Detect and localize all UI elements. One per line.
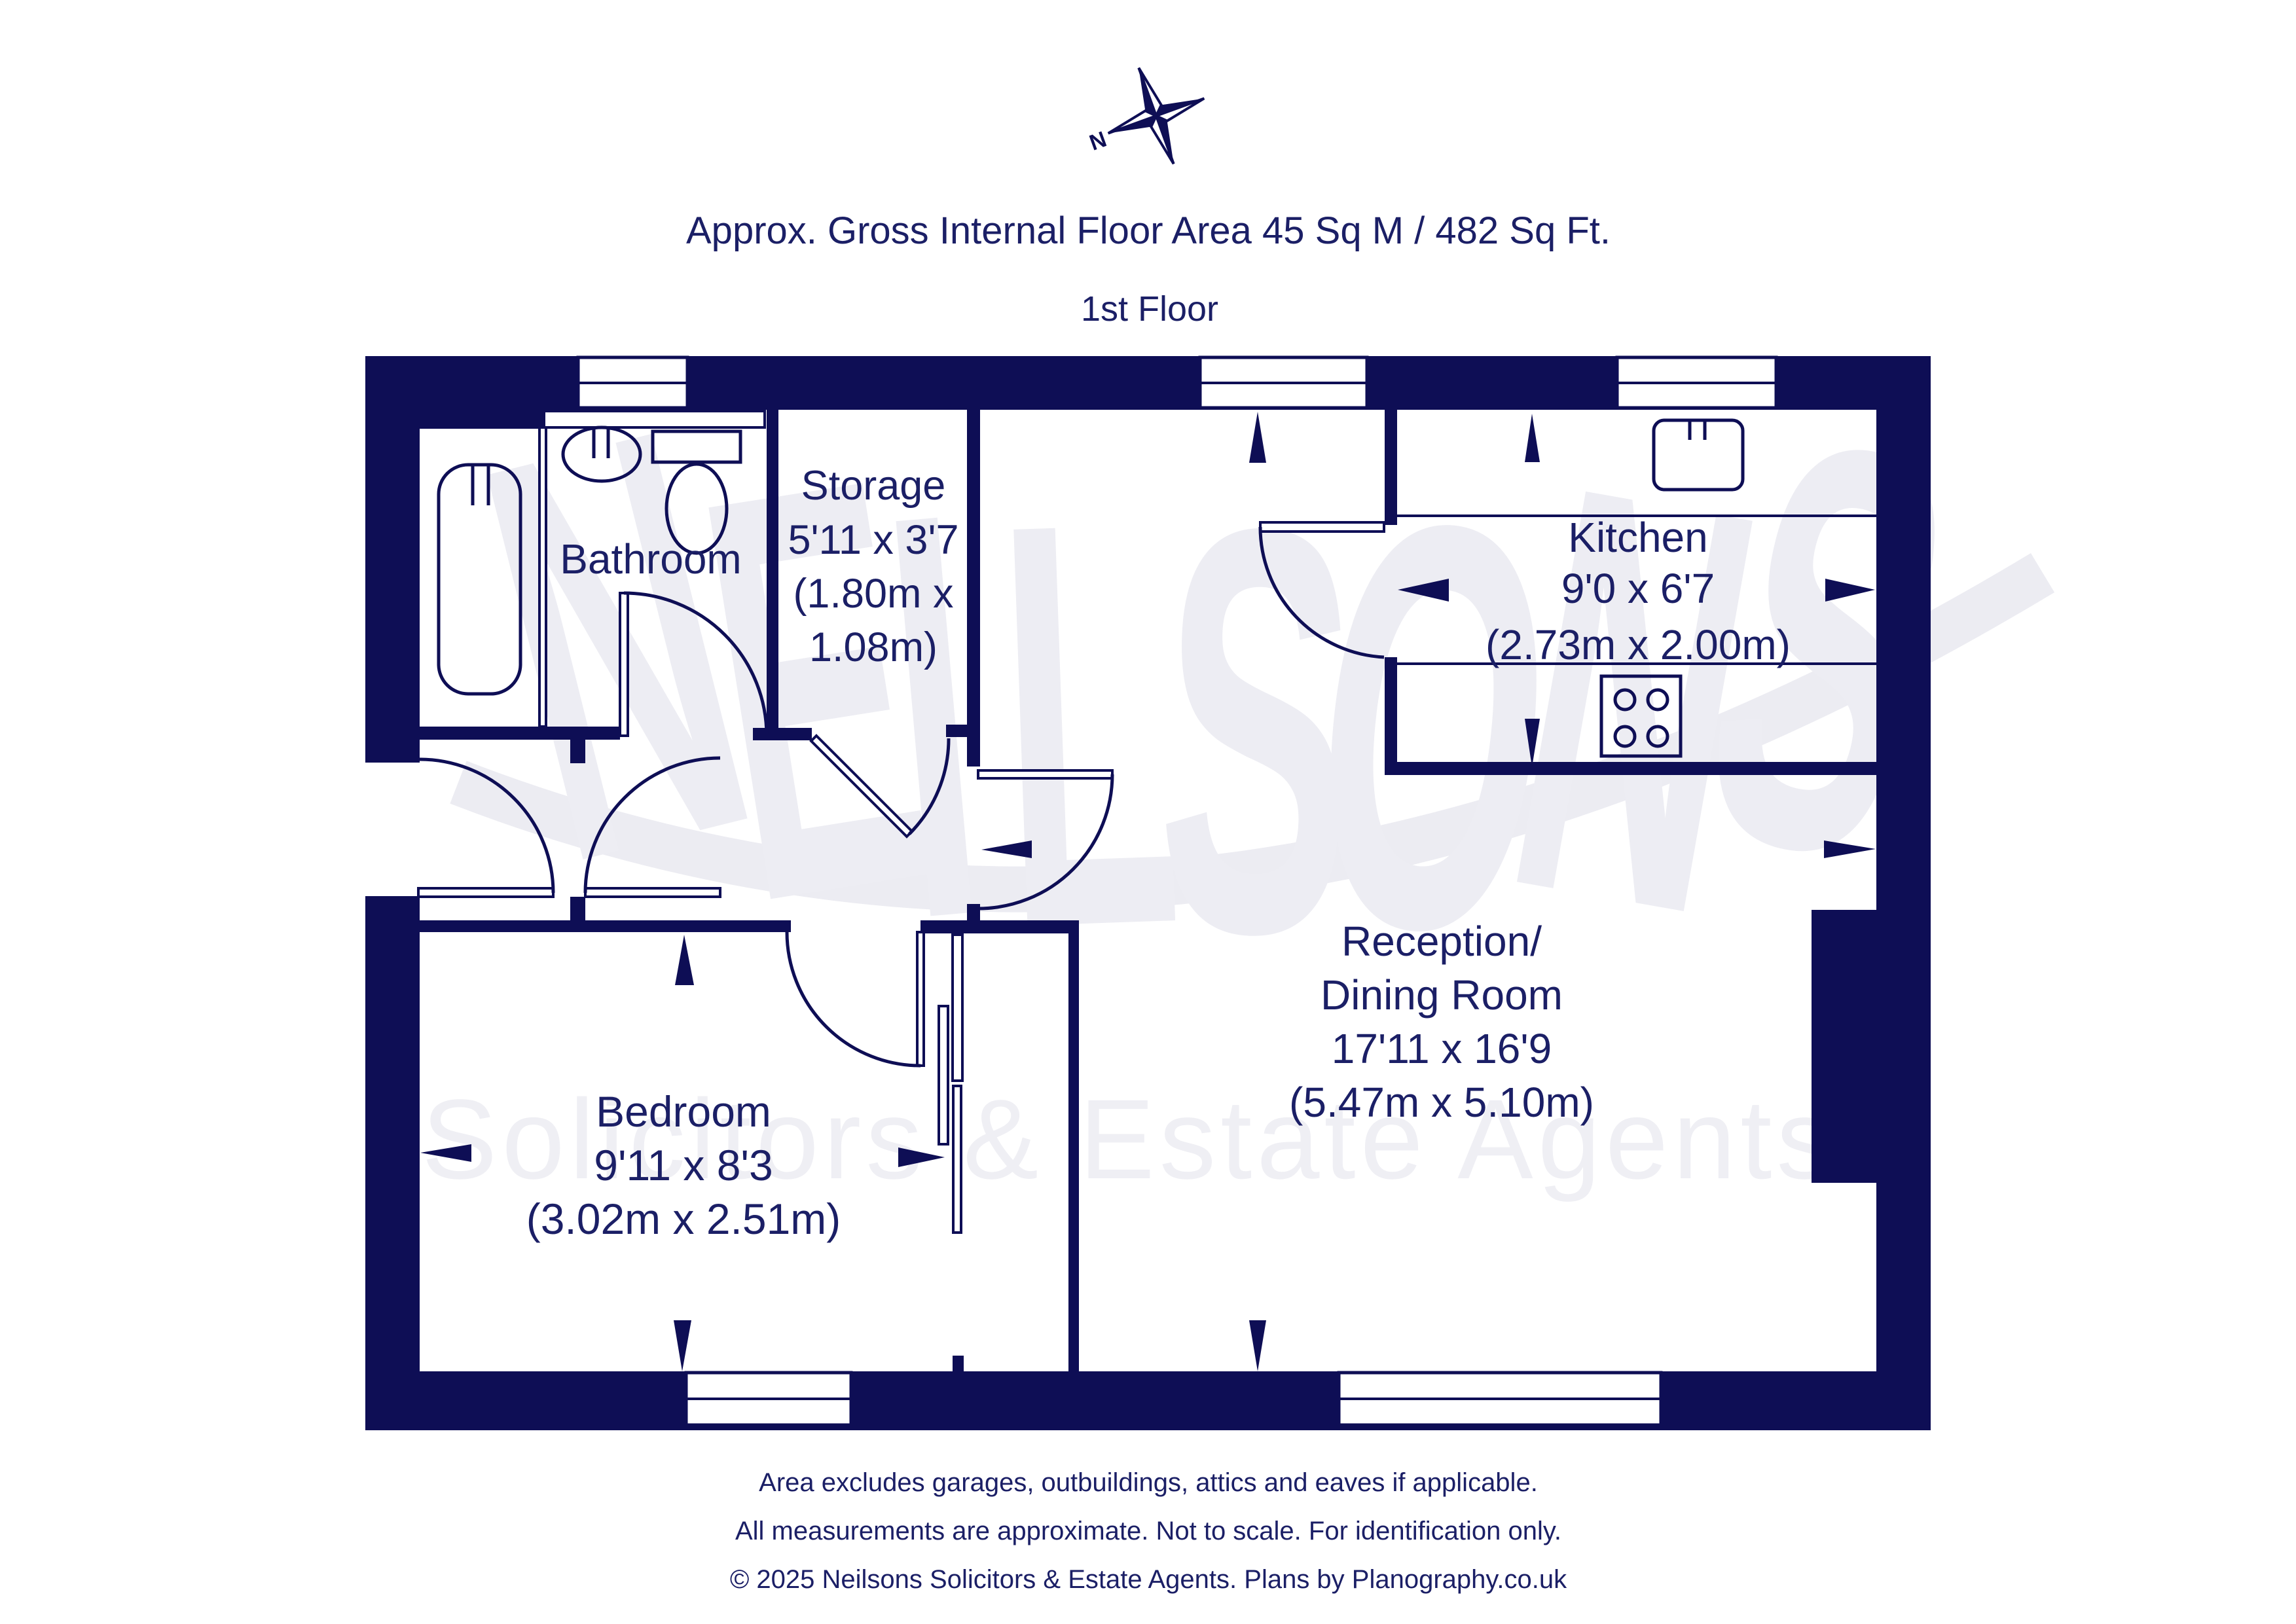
svg-text:(5.47m x 5.10m): (5.47m x 5.10m) — [1289, 1079, 1594, 1126]
svg-text:All measurements are approxima: All measurements are approximate. Not to… — [735, 1517, 1561, 1545]
svg-text:© 2025 Neilsons Solicitors & E: © 2025 Neilsons Solicitors & Estate Agen… — [730, 1565, 1567, 1594]
svg-text:9'11 x 8'3: 9'11 x 8'3 — [594, 1141, 773, 1189]
svg-text:(2.73m x 2.00m): (2.73m x 2.00m) — [1485, 621, 1791, 668]
svg-text:Reception/: Reception/ — [1341, 918, 1542, 965]
svg-text:Kitchen: Kitchen — [1568, 514, 1707, 561]
svg-text:(1.80m x: (1.80m x — [793, 571, 953, 617]
svg-text:1st Floor: 1st Floor — [1081, 289, 1218, 329]
svg-text:Dining Room: Dining Room — [1321, 971, 1563, 1019]
svg-text:5'11 x 3'7: 5'11 x 3'7 — [788, 517, 958, 563]
svg-text:Approx. Gross Internal Floor A: Approx. Gross Internal Floor Area 45 Sq … — [686, 209, 1611, 252]
svg-text:17'11 x 16'9: 17'11 x 16'9 — [1332, 1025, 1552, 1072]
svg-text:Storage: Storage — [801, 463, 946, 509]
svg-text:Bedroom: Bedroom — [596, 1087, 771, 1136]
svg-text:1.08m): 1.08m) — [809, 624, 938, 670]
svg-text:Area excludes garages, outbuil: Area excludes garages, outbuildings, att… — [759, 1468, 1538, 1497]
svg-text:9'0 x 6'7: 9'0 x 6'7 — [1561, 565, 1715, 612]
svg-text:Bathroom: Bathroom — [560, 535, 741, 583]
svg-text:(3.02m x 2.51m): (3.02m x 2.51m) — [526, 1195, 841, 1243]
